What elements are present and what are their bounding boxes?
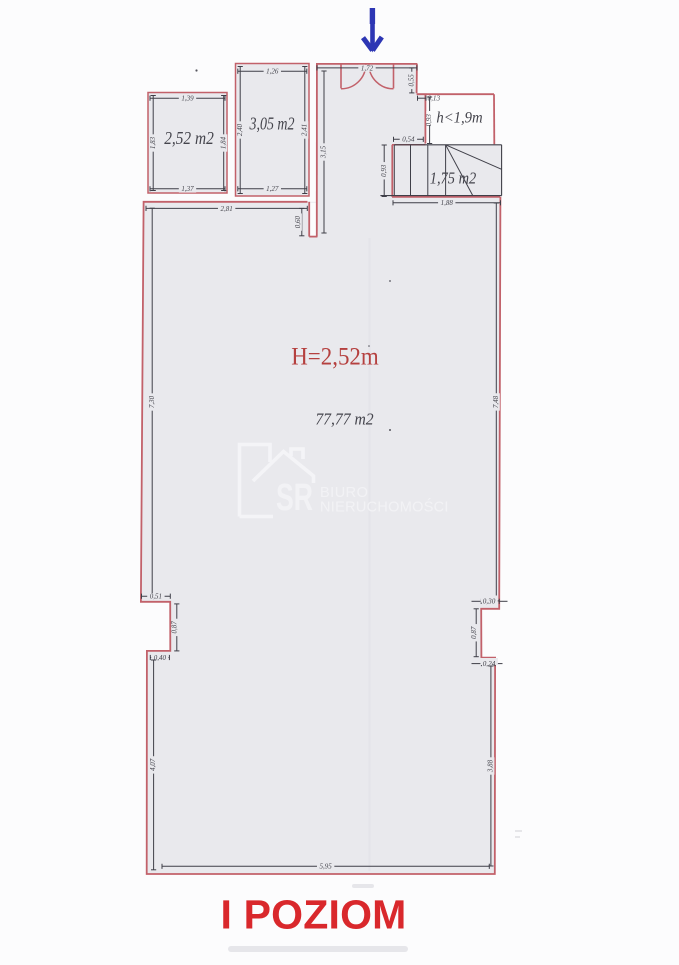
svg-text:77,77 m2: 77,77 m2 [315,411,373,428]
svg-text:0,87: 0,87 [171,621,179,634]
svg-text:SR: SR [276,475,313,518]
svg-text:1,83: 1,83 [149,136,157,149]
svg-text:0,93: 0,93 [425,114,433,127]
svg-text:2,81: 2,81 [221,205,233,213]
svg-text:3,05 m2: 3,05 m2 [249,115,295,134]
svg-text:0,60: 0,60 [294,215,302,228]
svg-text:0,40: 0,40 [154,654,167,662]
svg-text:0,54: 0,54 [402,136,415,144]
svg-text:1,26: 1,26 [266,68,279,76]
svg-text:H=2,52m: H=2,52m [291,342,379,370]
svg-text:0,93: 0,93 [380,164,388,177]
svg-text:h<1,9m: h<1,9m [436,110,482,126]
svg-text:3,15: 3,15 [320,145,328,159]
svg-text:0,24: 0,24 [483,660,496,668]
svg-text:0,55: 0,55 [407,74,415,87]
svg-text:3,88: 3,88 [487,759,495,773]
svg-text:I POZIOM: I POZIOM [220,891,406,937]
svg-text:5,95: 5,95 [320,863,333,871]
svg-text:1,84: 1,84 [219,136,227,149]
svg-text:2,52 m2: 2,52 m2 [164,128,214,148]
svg-text:2,40: 2,40 [236,123,244,136]
svg-text:NIERUCHOMOŚCI: NIERUCHOMOŚCI [320,498,449,516]
svg-text:7,48: 7,48 [492,395,500,408]
svg-text:1,88: 1,88 [441,199,454,207]
svg-text:0,51: 0,51 [150,593,162,601]
svg-text:2,41: 2,41 [300,124,308,136]
svg-text:7,30: 7,30 [148,395,156,408]
svg-text:1,27: 1,27 [266,185,279,193]
svg-text:1,72: 1,72 [361,64,374,72]
svg-text:1,75 m2: 1,75 m2 [430,169,477,187]
svg-text:1,39: 1,39 [181,95,194,103]
svg-text:0,30: 0,30 [483,597,496,605]
svg-text:0,87: 0,87 [470,626,478,639]
svg-text:1,37: 1,37 [181,185,194,193]
svg-text:4,07: 4,07 [149,758,157,771]
